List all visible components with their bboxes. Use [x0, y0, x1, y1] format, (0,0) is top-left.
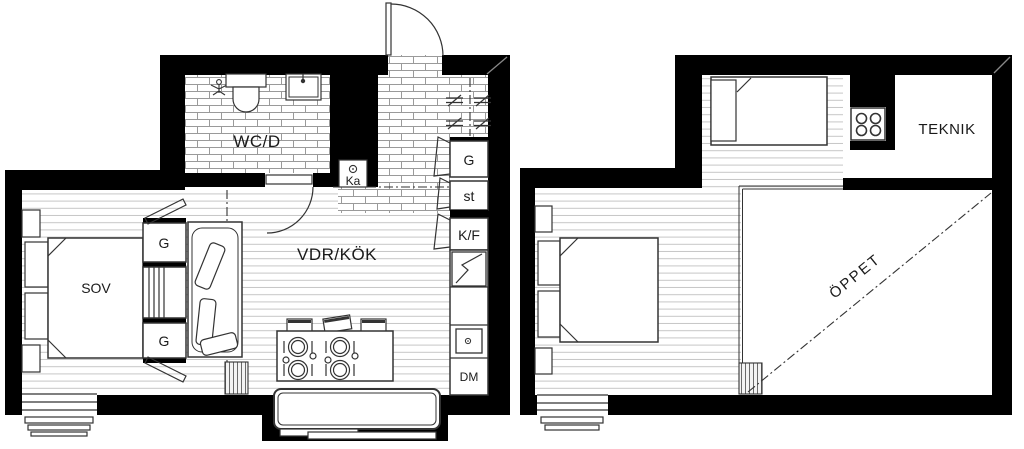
- loft-ladder: [225, 362, 248, 394]
- washbasin-icon: [286, 74, 321, 100]
- room-label-living-kitchen: VDR/KÖK: [297, 245, 377, 264]
- room-label-bathroom: WC/D: [233, 132, 280, 151]
- upper-floor-plan: TEKNIK ÖPPET: [520, 55, 1012, 430]
- tile-floor-hall-upper: [378, 75, 488, 138]
- window-loft-bedroom: [537, 391, 608, 430]
- sofa: [188, 222, 242, 357]
- loft-railing: [739, 186, 843, 363]
- chair: [287, 319, 312, 332]
- double-bed: [560, 238, 658, 342]
- entrance-door: [386, 3, 443, 56]
- fireplace-label: Ka: [346, 174, 361, 188]
- room-label-bedroom: SOV: [81, 280, 111, 296]
- window-living-bay: [274, 389, 440, 439]
- wardrobe-label: G: [159, 235, 170, 251]
- lower-floor-plan: WC/D Ka: [5, 3, 510, 441]
- tile-floor-hall-lower: [378, 138, 450, 187]
- open-to-below: ÖPPET: [748, 193, 991, 392]
- floorplan-canvas: WC/D Ka: [0, 0, 1024, 449]
- pillow: [538, 291, 560, 337]
- pillow: [25, 242, 48, 287]
- fridge-freezer-label: K/F: [458, 227, 480, 243]
- wardrobe-label: G: [159, 333, 170, 349]
- dishwasher-label: DM: [460, 370, 479, 384]
- bedside-table: [535, 206, 552, 232]
- single-bed: [711, 77, 827, 145]
- fireplace-ka: Ka: [339, 160, 367, 188]
- bedside-table: [22, 345, 40, 372]
- tile-floor-hearth: [338, 187, 450, 213]
- wardrobe-unit: G G: [143, 199, 186, 382]
- double-bed: [48, 238, 143, 358]
- dining-table: [277, 315, 393, 381]
- chair: [361, 319, 386, 332]
- pillow: [538, 241, 560, 285]
- bedside-table: [22, 210, 40, 237]
- floorplan-page: WC/D Ka: [0, 0, 1024, 449]
- room-label-teknik: TEKNIK: [918, 121, 975, 138]
- bedside-table: [535, 348, 552, 374]
- tile-floor-doorway: [388, 55, 442, 75]
- open-to-below-label: ÖPPET: [826, 250, 885, 302]
- pillow: [25, 293, 48, 339]
- window-bedroom: [22, 390, 97, 436]
- teknik-unit-icon: [851, 108, 885, 140]
- tall-cabinet-label: G: [464, 152, 475, 168]
- cleaning-closet-label: st: [464, 188, 475, 204]
